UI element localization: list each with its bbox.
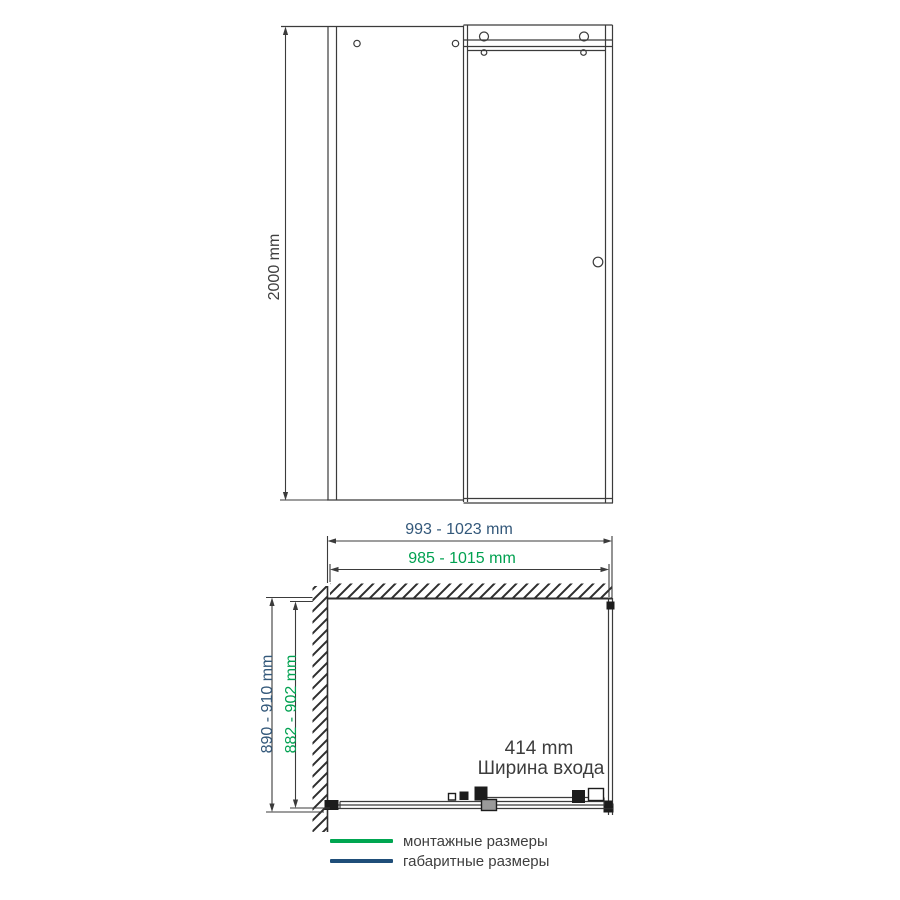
technical-drawing-page: 2000 mm 993 - 1023 mm 985 - 1015 mm 890 … bbox=[0, 0, 900, 900]
entry-width-caption: Ширина входа bbox=[456, 758, 626, 779]
side-panel-plan bbox=[609, 598, 613, 815]
mounting-dimension-swatch bbox=[330, 839, 393, 843]
track-hardware bbox=[449, 794, 456, 801]
legend-label-overall: габаритные размеры bbox=[403, 853, 549, 870]
overall-width-label: 993 - 1023 mm bbox=[389, 521, 529, 539]
screw-icon bbox=[354, 40, 360, 46]
overall-depth-label: 890 - 910 mm bbox=[259, 634, 277, 774]
plan-view bbox=[313, 584, 615, 833]
door-track-plan bbox=[330, 798, 613, 809]
wall-left-hatch bbox=[313, 586, 328, 832]
mounting-depth-label: 882 - 902 mm bbox=[283, 634, 301, 774]
slider-bottom-seal bbox=[464, 499, 614, 504]
front-view bbox=[281, 25, 613, 503]
front-height-dimension bbox=[280, 27, 327, 501]
door-handle-icon bbox=[593, 257, 603, 267]
wall-profile bbox=[328, 27, 337, 500]
track-guide-block bbox=[482, 800, 497, 811]
overall-dimension-swatch bbox=[330, 859, 393, 863]
panel-junction bbox=[464, 26, 468, 503]
right-profile bbox=[606, 25, 613, 503]
track-stopper bbox=[589, 789, 604, 801]
dimension-legend: монтажные размеры габаритные размеры bbox=[330, 831, 549, 871]
shower-enclosure-drawing bbox=[0, 0, 900, 900]
corner-bracket bbox=[605, 801, 613, 809]
legend-row-mounting: монтажные размеры bbox=[330, 831, 549, 851]
track-hardware bbox=[460, 792, 469, 801]
entry-width-value: 414 mm bbox=[469, 738, 609, 759]
side-panel-bracket bbox=[607, 602, 615, 610]
front-height-label: 2000 mm bbox=[266, 197, 284, 337]
track-roller-block bbox=[572, 790, 585, 803]
track-roller-block bbox=[475, 787, 488, 801]
legend-label-mounting: монтажные размеры bbox=[403, 833, 548, 850]
mounting-width-label: 985 - 1015 mm bbox=[392, 550, 532, 568]
legend-row-overall: габаритные размеры bbox=[330, 851, 549, 871]
screw-icon bbox=[452, 40, 458, 46]
wall-top-hatch bbox=[330, 584, 612, 599]
